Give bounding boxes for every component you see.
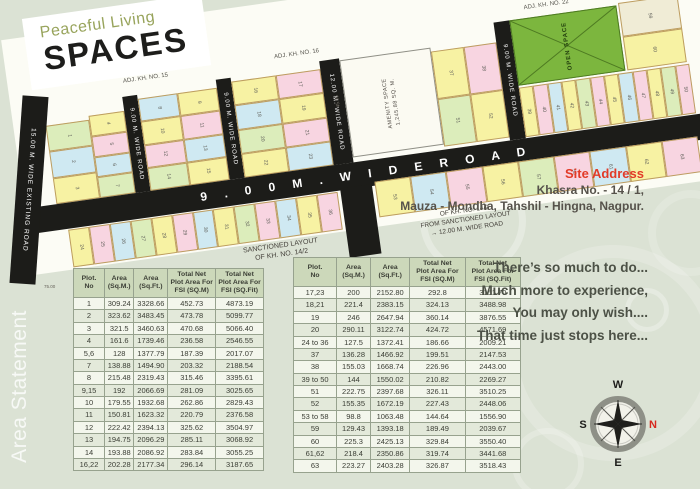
table-cell: 3328.66: [134, 298, 168, 310]
plot-number: 3: [73, 186, 79, 190]
table-cell: 281.09: [168, 384, 216, 396]
svg-text:S: S: [579, 419, 586, 431]
table-cell: 199.51: [410, 348, 465, 360]
table-cell: 39 to 50: [294, 373, 337, 385]
site-address-line: Mauza - Mondha, Tahshil - Hingna, Nagpur…: [400, 199, 644, 215]
plot-number: 30: [202, 227, 209, 233]
table-cell: 7: [74, 359, 105, 371]
table-cell: 3025.65: [216, 384, 264, 396]
table-cell: 2647.94: [371, 311, 410, 323]
table-cell: 3483.45: [134, 310, 168, 322]
table-cell: 37: [294, 348, 337, 360]
plot-number: 6: [110, 163, 116, 167]
area-table-left: Plot. NoArea (Sq.M.)Area (Sq.Ft.)Total N…: [73, 268, 264, 471]
table-cell: 1550.02: [371, 373, 410, 385]
table-cell: 315.46: [168, 372, 216, 384]
table-cell: 1494.90: [134, 359, 168, 371]
table-cell: 3068.92: [216, 434, 264, 446]
table-cell: 53 to 58: [294, 410, 337, 422]
table-cell: 2394.13: [134, 421, 168, 433]
table-cell: 236.58: [168, 335, 216, 347]
compass-rose: W N S E: [574, 374, 662, 475]
table-cell: 309.24: [105, 298, 134, 310]
column-header: Area (Sq.M.): [337, 258, 371, 287]
table-cell: 2177.34: [134, 458, 168, 470]
table-cell: 326.11: [410, 386, 465, 398]
plot-number: 4: [105, 122, 111, 126]
plot-number: 43: [583, 100, 590, 106]
table-cell: 14: [74, 446, 105, 458]
table-cell: 1739.46: [134, 335, 168, 347]
table-cell: 155.35: [337, 398, 371, 410]
plot-number: 26: [119, 238, 126, 244]
plot-number: 32: [244, 221, 251, 227]
table-cell: 222.75: [337, 386, 371, 398]
table-cell: 210.82: [410, 373, 465, 385]
table-cell: 2066.69: [134, 384, 168, 396]
plot-block-c: 1617181920212223: [231, 69, 334, 178]
plot-number: 60: [651, 46, 658, 52]
table-cell: 2425.13: [371, 435, 410, 447]
table-cell: 193.88: [105, 446, 134, 458]
table-cell: 326.87: [410, 460, 465, 472]
plot-number: 53: [392, 194, 399, 200]
table-cell: 60: [294, 435, 337, 447]
plot-number: 44: [597, 98, 604, 104]
area-table: Plot. NoArea (Sq.M.)Area (Sq.Ft.)Total N…: [73, 268, 264, 471]
table-cell: 9,15: [74, 384, 105, 396]
table-row: 11150.811623.32220.792376.58: [74, 409, 264, 421]
table-cell: 2397.68: [371, 386, 410, 398]
table-cell: 150.81: [105, 409, 134, 421]
table-cell: 144.64: [410, 410, 465, 422]
tagline-line: Much more to experience,: [477, 280, 648, 303]
plot-number: 16: [252, 87, 259, 93]
column-header: Total Net Plot Area For FSI (SQ.M): [410, 258, 465, 287]
plot-number: 1: [66, 134, 72, 138]
table-cell: 63: [294, 460, 337, 472]
table-cell: 223.27: [337, 460, 371, 472]
table-cell: 2383.15: [371, 299, 410, 311]
plot-number: 51: [454, 117, 461, 123]
plot-number: 52: [487, 113, 494, 119]
plot-number: 28: [161, 232, 168, 238]
table-cell: 3122.74: [371, 324, 410, 336]
table-cell: 24 to 36: [294, 336, 337, 348]
table-cell: 4: [74, 335, 105, 347]
table-cell: 1556.90: [465, 410, 520, 422]
plot-number: 40: [540, 106, 547, 112]
table-row: 9,151922066.69281.093025.65: [74, 384, 264, 396]
plot-number: 38: [480, 65, 487, 71]
plot-number: 13: [202, 145, 209, 151]
amenity-space: AMENITY SPACE 1,245.88 SQ. M.: [339, 48, 444, 158]
table-cell: 2017.07: [216, 347, 264, 359]
table-cell: 323.62: [105, 310, 134, 322]
plot-number: 21: [303, 129, 310, 135]
plot-63: 63: [661, 136, 700, 177]
table-cell: 1932.68: [134, 397, 168, 409]
table-cell: 194.75: [105, 434, 134, 446]
plot-number: 63: [678, 153, 685, 159]
table-row: 39 to 501441550.02210.822269.27: [294, 373, 521, 385]
plot-number: 39: [526, 108, 533, 114]
plot-number: 45: [611, 96, 618, 102]
table-cell: 2443.00: [465, 361, 520, 373]
tagline-line: There’s so much to do...: [477, 257, 648, 280]
table-cell: 61,62: [294, 447, 337, 459]
table-row: 2323.623483.45473.785099.77: [74, 310, 264, 322]
plot-number: 5: [107, 142, 113, 146]
compass-icon: W N S E: [574, 374, 662, 470]
plot-number: 36: [326, 209, 333, 215]
table-cell: 136.28: [337, 348, 371, 360]
plot-number: 24: [78, 244, 85, 250]
plot-number: 20: [258, 135, 265, 141]
table-cell: 10: [74, 397, 105, 409]
table-cell: 2448.06: [465, 398, 520, 410]
table-cell: 2546.55: [216, 335, 264, 347]
table-cell: 1063.48: [371, 410, 410, 422]
table-cell: 13: [74, 434, 105, 446]
plot-number: 47: [639, 92, 646, 98]
brochure-page: ADJ. KH. NO. 15 ADJ. KH. NO. 16 ADJ. KH.…: [0, 0, 700, 489]
plot-number: 10: [159, 127, 166, 133]
table-row: 12222.422394.13325.623504.97: [74, 421, 264, 433]
plot-number: 35: [306, 212, 313, 218]
table-cell: 11: [74, 409, 105, 421]
table-cell: 1372.41: [371, 336, 410, 348]
table-cell: 1: [74, 298, 105, 310]
table-row: 63223.272403.28326.873518.43: [294, 460, 521, 472]
table-cell: 220.79: [168, 409, 216, 421]
road-label: 15.00 M. WIDE EXISTING ROAD: [21, 128, 37, 252]
tagline-line: You may only wish....: [477, 302, 648, 325]
table-cell: 200: [337, 287, 371, 299]
table-cell: 1393.18: [371, 423, 410, 435]
site-address: Site Address Khasra No. - 14 / 1, Mauza …: [400, 166, 644, 214]
table-row: 1309.243328.66452.734873.19: [74, 298, 264, 310]
table-cell: 12: [74, 421, 105, 433]
table-cell: 473.78: [168, 310, 216, 322]
table-cell: 1623.32: [134, 409, 168, 421]
plot-number: 14: [165, 173, 172, 179]
table-cell: 51: [294, 386, 337, 398]
table-cell: 246: [337, 311, 371, 323]
table-cell: 3: [74, 322, 105, 334]
table-cell: 138.88: [105, 359, 134, 371]
table-row: 7138.881494.90203.322188.54: [74, 359, 264, 371]
tagline-quote: There’s so much to do... Much more to ex…: [477, 257, 648, 347]
plot-number: 15: [205, 168, 212, 174]
table-cell: 17,23: [294, 287, 337, 299]
table-cell: 3550.40: [465, 435, 520, 447]
table-cell: 19: [294, 311, 337, 323]
table-cell: 38: [294, 361, 337, 373]
table-cell: 129.43: [337, 423, 371, 435]
table-cell: 1466.92: [371, 348, 410, 360]
column-header: Area (Sq.Ft.): [134, 269, 168, 298]
table-cell: 59: [294, 423, 337, 435]
table-row: 59129.431393.18189.492039.67: [294, 423, 521, 435]
plot-number: 50: [682, 86, 689, 92]
table-cell: 3441.68: [465, 447, 520, 459]
table-row: 51222.752397.68326.113510.25: [294, 386, 521, 398]
table-cell: 20: [294, 324, 337, 336]
area-statement-label: Area Statement: [8, 310, 32, 463]
table-cell: 2188.54: [216, 359, 264, 371]
svg-text:N: N: [649, 419, 657, 431]
table-cell: 52: [294, 398, 337, 410]
table-cell: 2269.27: [465, 373, 520, 385]
table-cell: 262.86: [168, 397, 216, 409]
column-header: Plot. No: [294, 258, 337, 287]
plot-number: 2: [70, 160, 76, 164]
table-cell: 225.3: [337, 435, 371, 447]
table-cell: 189.49: [410, 423, 465, 435]
table-cell: 179.55: [105, 397, 134, 409]
table-cell: 186.66: [410, 336, 465, 348]
column-header: Area (Sq.M.): [105, 269, 134, 298]
table-row: 10179.551932.68262.862829.43: [74, 397, 264, 409]
plot-number: 22: [262, 159, 269, 165]
column-header: Total Net Plot Area For FSI (SQ.Fit): [216, 269, 264, 298]
plot-number: 33: [264, 218, 271, 224]
table-cell: 128: [105, 347, 134, 359]
table-cell: 2147.53: [465, 348, 520, 360]
table-cell: 187.39: [168, 347, 216, 359]
table-row: 8215.482319.43315.463395.61: [74, 372, 264, 384]
plot-number: 25: [99, 241, 106, 247]
plot-number: 37: [447, 70, 454, 76]
table-cell: 2403.28: [371, 460, 410, 472]
table-row: 53 to 5898.81063.48144.641556.90: [294, 410, 521, 422]
table-cell: 4873.19: [216, 298, 264, 310]
table-cell: 3055.25: [216, 446, 264, 458]
table-cell: 215.48: [105, 372, 134, 384]
table-cell: 5066.40: [216, 322, 264, 334]
table-cell: 292.8: [410, 287, 465, 299]
table-cell: 2319.43: [134, 372, 168, 384]
table-cell: 3518.43: [465, 460, 520, 472]
site-address-line: Khasra No. - 14 / 1,: [400, 183, 644, 199]
svg-text:W: W: [613, 379, 624, 391]
table-row: 13194.752096.29285.113068.92: [74, 434, 264, 446]
plot-number: 31: [223, 224, 230, 230]
table-cell: 144: [337, 373, 371, 385]
plot-number: 29: [181, 229, 188, 235]
table-row: 5,61281377.79187.392017.07: [74, 347, 264, 359]
table-cell: 319.74: [410, 447, 465, 459]
plot-number: 12: [162, 150, 169, 156]
plot-number: 46: [625, 94, 632, 100]
plot-number: 59: [647, 13, 654, 19]
table-row: 16,22202.282177.34296.143187.65: [74, 458, 264, 470]
road-dimension: 75.00: [44, 284, 55, 289]
table-cell: 285.11: [168, 434, 216, 446]
column-header: Total Net Plot Area For FSI (SQ.M): [168, 269, 216, 298]
plot-number: 27: [140, 235, 147, 241]
table-cell: 5099.77: [216, 310, 264, 322]
table-cell: 1668.74: [371, 361, 410, 373]
table-row: 3321.53460.63470.685066.40: [74, 322, 264, 334]
table-cell: 452.73: [168, 298, 216, 310]
table-row: 52155.351672.19227.432448.06: [294, 398, 521, 410]
table-cell: 155.03: [337, 361, 371, 373]
table-cell: 226.96: [410, 361, 465, 373]
table-cell: 192: [105, 384, 134, 396]
table-cell: 127.5: [337, 336, 371, 348]
table-row: 61,62218.42350.86319.743441.68: [294, 447, 521, 459]
table-cell: 3395.61: [216, 372, 264, 384]
table-cell: 283.84: [168, 446, 216, 458]
table-cell: 18,21: [294, 299, 337, 311]
table-cell: 2350.86: [371, 447, 410, 459]
table-cell: 290.11: [337, 324, 371, 336]
table-cell: 8: [74, 372, 105, 384]
plot-number: 17: [296, 81, 303, 87]
svg-text:E: E: [614, 457, 621, 469]
column-header: Area (Sq.Ft.): [371, 258, 410, 287]
plot-block-b: 89101112131415: [138, 88, 230, 191]
table-cell: 161.6: [105, 335, 134, 347]
table-cell: 227.43: [410, 398, 465, 410]
table-cell: 2: [74, 310, 105, 322]
table-cell: 324.13: [410, 299, 465, 311]
plot-number: 18: [255, 111, 262, 117]
table-cell: 2096.29: [134, 434, 168, 446]
table-row: 4161.61739.46236.582546.55: [74, 335, 264, 347]
table-cell: 360.14: [410, 311, 465, 323]
table-row: 38155.031668.74226.962443.00: [294, 361, 521, 373]
tagline-line: That time just stops here...: [477, 325, 648, 348]
table-row: 14193.882086.92283.843055.25: [74, 446, 264, 458]
site-address-title: Site Address: [400, 166, 644, 181]
plot-number: 49: [668, 88, 675, 94]
plot-number: 48: [654, 90, 661, 96]
table-cell: 2086.92: [134, 446, 168, 458]
table-cell: 424.72: [410, 324, 465, 336]
table-cell: 203.32: [168, 359, 216, 371]
table-cell: 1377.79: [134, 347, 168, 359]
table-cell: 2039.67: [465, 423, 520, 435]
plot-number: 34: [285, 215, 292, 221]
table-cell: 329.84: [410, 435, 465, 447]
table-cell: 218.4: [337, 447, 371, 459]
table-cell: 202.28: [105, 458, 134, 470]
table-cell: 1672.19: [371, 398, 410, 410]
table-cell: 3460.63: [134, 322, 168, 334]
table-cell: 222.42: [105, 421, 134, 433]
plot-number: 7: [113, 183, 119, 187]
table-cell: 16,22: [74, 458, 105, 470]
column-header: Plot. No: [74, 269, 105, 298]
table-row: 60225.32425.13329.843550.40: [294, 435, 521, 447]
plot-number: 62: [643, 159, 650, 165]
table-cell: 3510.25: [465, 386, 520, 398]
plot-block-f: 5960: [618, 0, 687, 70]
table-cell: 3187.65: [216, 458, 264, 470]
plot-number: 19: [300, 105, 307, 111]
table-cell: 2376.58: [216, 409, 264, 421]
table-cell: 2152.80: [371, 287, 410, 299]
table-cell: 325.62: [168, 421, 216, 433]
table-cell: 98.8: [337, 410, 371, 422]
plot-number: 42: [569, 102, 576, 108]
plot-number: 9: [195, 100, 201, 104]
table-cell: 321.5: [105, 322, 134, 334]
table-cell: 221.4: [337, 299, 371, 311]
plot-number: 41: [554, 104, 561, 110]
plot-number: 8: [156, 106, 162, 110]
table-cell: 5,6: [74, 347, 105, 359]
table-cell: 3504.97: [216, 421, 264, 433]
plot-number: 11: [199, 122, 206, 128]
plot-number: 23: [306, 153, 313, 159]
table-cell: 2829.43: [216, 397, 264, 409]
table-cell: 470.68: [168, 322, 216, 334]
table-row: 37136.281466.92199.512147.53: [294, 348, 521, 360]
table-cell: 296.14: [168, 458, 216, 470]
